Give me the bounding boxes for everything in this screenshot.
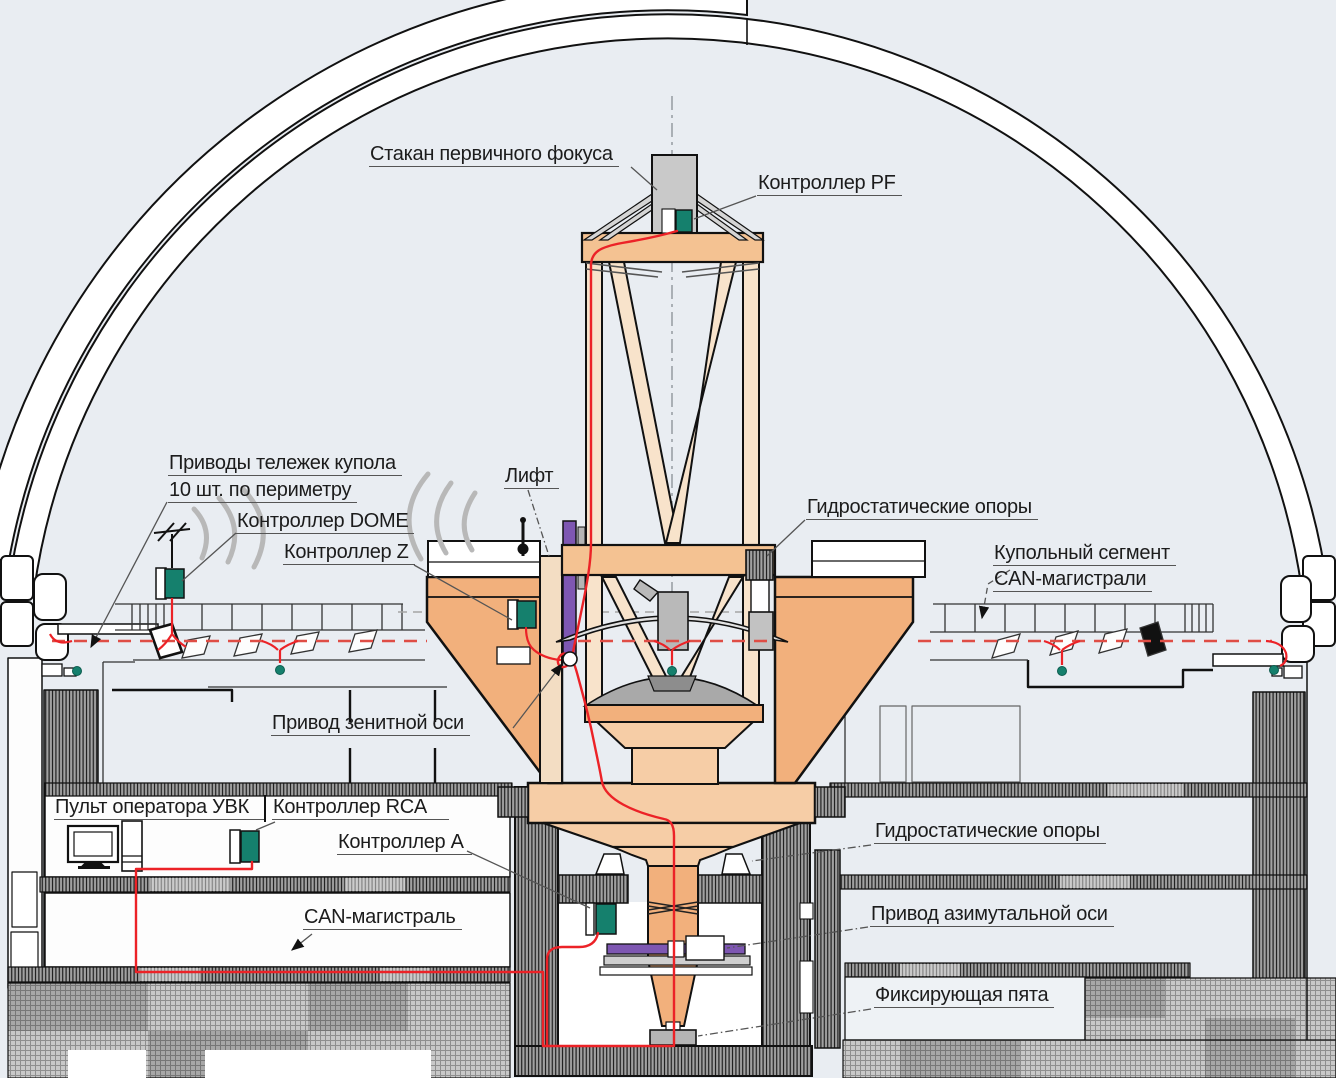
label-divider [264, 795, 266, 822]
left-mid-walls [112, 690, 435, 783]
left-ledge [58, 624, 158, 634]
left-deck [115, 604, 425, 660]
ground-gap [205, 1050, 431, 1078]
controller-pf-box [676, 210, 692, 232]
label-controller-z: Контроллер Z [283, 541, 415, 565]
label-operator-console: Пульт оператора УВК [54, 796, 265, 820]
label-dome-drives-2: 10 шт. по периметру [168, 479, 357, 503]
label-fixing-heel: Фиксирующая пята [874, 984, 1054, 1008]
label-dome-segment-2: CAN-магистрали [993, 568, 1152, 592]
right-deck-railing [945, 604, 1213, 632]
label-can-bus: CAN-магистраль [303, 906, 462, 930]
tube-butt [597, 722, 753, 748]
label-hydrostatic-lower: Гидростатические опоры [874, 820, 1106, 844]
lift-column [540, 556, 562, 783]
tube-butt-column [632, 748, 718, 784]
controller-z-box [517, 601, 536, 628]
right-mid-partitions [845, 660, 1213, 783]
label-controller-dome: Контроллер DOME [236, 510, 414, 534]
middle-ring [562, 545, 775, 575]
label-dome-segment-1: Купольный сегмент [993, 542, 1176, 566]
label-primary-focus: Стакан первичного фокуса [369, 143, 619, 167]
controller-z-assembly [508, 600, 536, 629]
controller-rca-assembly [230, 830, 259, 863]
label-azimuth-drive: Привод азимутальной оси [870, 903, 1114, 927]
left-lower-room [45, 893, 510, 967]
right-ledge [1213, 654, 1283, 666]
pier-door [800, 961, 813, 1013]
fork-right-platform [812, 541, 925, 577]
label-controller-pf: Контроллер PF [757, 172, 902, 196]
leader-hydro-upper [767, 520, 805, 556]
label-lift: Лифт [504, 465, 559, 489]
pier-outer-column [815, 850, 840, 1048]
pier-shoulder-left [558, 875, 628, 903]
label-dome-drives-1: Приводы тележек купола [168, 452, 402, 476]
diagram-canvas: Стакан первичного фокуса Контроллер PF П… [0, 0, 1336, 1078]
hydrostatic-pad-right [722, 854, 750, 874]
controller-a-box [596, 904, 616, 934]
can-nodes [73, 666, 1279, 676]
controller-dome-assembly [154, 523, 190, 599]
label-controller-a: Контроллер А [337, 831, 472, 855]
controller-a-assembly [586, 903, 616, 935]
pier-door [800, 903, 813, 919]
ground-gap [68, 1050, 146, 1078]
right-deck [930, 604, 1213, 660]
deck-hatch-dark [1140, 622, 1166, 656]
limit-switch-box [497, 647, 530, 664]
hydrostatic-pad-left [596, 854, 624, 874]
controller-rca-box [241, 831, 259, 862]
diagram-drawing [0, 0, 1336, 1078]
azimuth-motor [686, 936, 724, 960]
zenith-drive-nut [563, 652, 577, 666]
fork-right-arm [775, 577, 913, 783]
label-controller-rca: Контроллер RCA [272, 796, 449, 820]
left-wall-box [12, 872, 37, 927]
computer-tower [122, 821, 142, 871]
controller-dome-box [165, 569, 184, 598]
label-zenith-drive: Привод зенитной оси [271, 712, 470, 736]
fork-antenna [518, 517, 529, 556]
mirror-cell [585, 705, 763, 722]
pier-shoulder-right [692, 875, 762, 903]
pier-base [515, 1046, 812, 1076]
label-hydrostatic-upper: Гидростатические опоры [806, 496, 1038, 520]
